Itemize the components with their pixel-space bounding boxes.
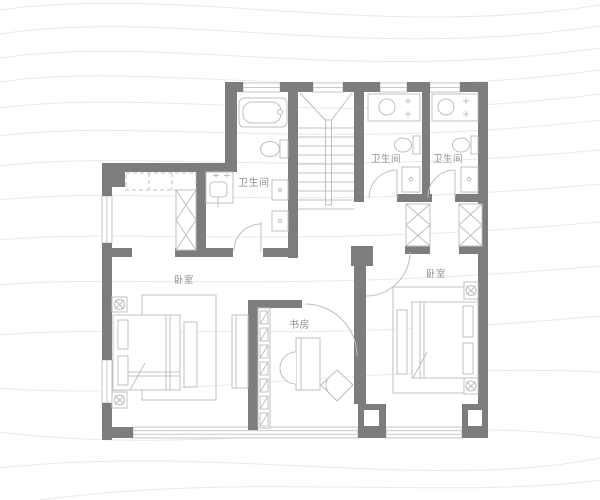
room-label-bedroom-right: 卧室 xyxy=(426,268,446,280)
pillow xyxy=(118,320,128,349)
sink-icon xyxy=(432,94,478,121)
bedroom-right-furniture xyxy=(393,282,478,394)
nightstand-flower-icon xyxy=(112,297,127,312)
bathtub-icon xyxy=(239,98,287,127)
window-band xyxy=(102,196,112,243)
window-band xyxy=(380,83,407,92)
sink-icon xyxy=(206,172,233,207)
window-band xyxy=(430,83,460,92)
sink-icon xyxy=(368,94,420,121)
bathroom-main-fixtures xyxy=(206,98,288,252)
toilet-icon xyxy=(453,136,479,154)
desk-chair-icon xyxy=(280,352,296,384)
closet-shelves xyxy=(126,173,196,190)
pillow xyxy=(118,356,128,385)
bed xyxy=(113,315,180,390)
shower-basin-icon xyxy=(402,167,420,192)
window-band xyxy=(133,427,358,438)
bathroom-right-fixtures xyxy=(428,94,478,198)
shower-basin-icon xyxy=(461,167,478,192)
window-band xyxy=(313,83,343,92)
dresser xyxy=(232,315,248,388)
door-arc xyxy=(428,170,455,198)
window-band xyxy=(102,360,112,403)
floor-plan-canvas: 卫生间 卫生间 卫生间 卧室 卧室 书房 xyxy=(0,0,600,500)
room-label-bathroom-right: 卫生间 xyxy=(433,153,463,165)
nightstand-flower-icon xyxy=(464,378,478,394)
room-label-bathroom-main: 卫生间 xyxy=(238,176,270,189)
bed xyxy=(412,302,478,378)
floor-plan: 卫生间 卫生间 卫生间 卧室 卧室 书房 xyxy=(0,0,600,500)
room-label-study: 书房 xyxy=(289,318,310,331)
room-label-bathroom-mid: 卫生间 xyxy=(371,153,401,165)
window-band xyxy=(386,427,462,438)
lounge-chair-icon xyxy=(321,370,353,401)
door-arc xyxy=(369,170,397,198)
toilet-icon xyxy=(261,140,289,158)
bench xyxy=(397,310,407,374)
pillow xyxy=(463,306,473,337)
wardrobe-x-icon xyxy=(459,204,482,246)
stairs xyxy=(298,93,354,209)
bathroom-mid-fixtures xyxy=(368,94,420,198)
washer-icon xyxy=(272,180,288,231)
watermark-curves xyxy=(0,3,600,500)
nightstand-flower-icon xyxy=(112,392,127,408)
bedroom-left-furniture xyxy=(112,295,248,408)
bench xyxy=(184,322,197,387)
toilet-icon xyxy=(395,136,421,154)
dressing-area xyxy=(126,173,196,250)
bookshelf xyxy=(258,308,270,428)
wardrobe-x-icon xyxy=(406,204,430,246)
room-label-bedroom-left: 卧室 xyxy=(174,274,194,286)
nightstand-flower-icon xyxy=(464,282,478,299)
desk xyxy=(296,338,320,390)
window-band xyxy=(243,83,280,92)
wardrobe-x-icon xyxy=(176,190,196,250)
pillow xyxy=(463,343,473,374)
